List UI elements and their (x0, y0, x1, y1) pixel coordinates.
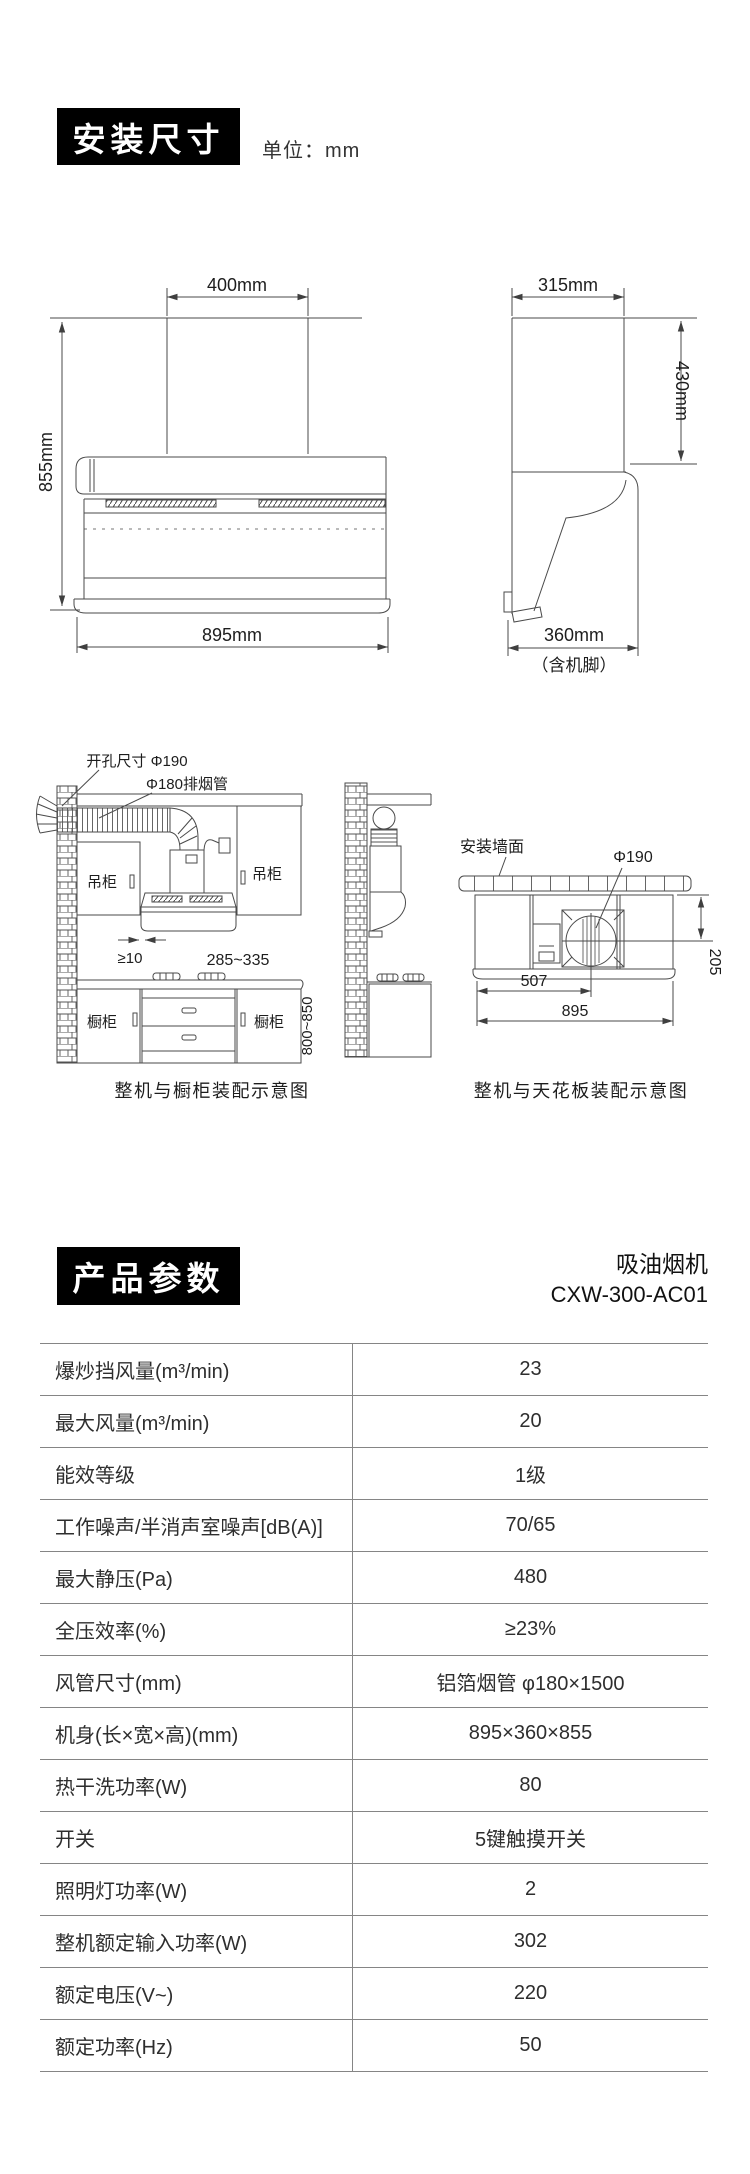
spec-label: 最大风量(m³/min) (40, 1396, 353, 1447)
table-row: 机身(长×宽×高)(mm) 895×360×855 (40, 1708, 708, 1760)
spec-label: 整机额定输入功率(W) (40, 1916, 353, 1967)
spec-value: 50 (353, 2020, 708, 2071)
spec-label: 机身(长×宽×高)(mm) (40, 1708, 353, 1759)
install-section-header: 安装尺寸 (57, 108, 240, 165)
table-row: 能效等级 1级 (40, 1448, 708, 1500)
side-width-top-dim: 315mm (538, 275, 598, 295)
spec-label: 额定电压(V~) (40, 1968, 353, 2019)
table-row: 额定电压(V~) 220 (40, 1968, 708, 2020)
base-cabinet-left-label: 橱柜 (87, 1014, 117, 1031)
ceiling-diagram-caption: 整机与天花板装配示意图 (474, 1081, 689, 1101)
counter-height-dim: 800~850 (299, 997, 316, 1056)
spec-label: 额定功率(Hz) (40, 2020, 353, 2071)
spec-value: 480 (353, 1552, 708, 1603)
table-row: 额定功率(Hz) 50 (40, 2020, 708, 2072)
spec-value: 895×360×855 (353, 1708, 708, 1759)
table-row: 最大风量(m³/min) 20 (40, 1396, 708, 1448)
table-row: 开关 5键触摸开关 (40, 1812, 708, 1864)
spec-label: 热干洗功率(W) (40, 1760, 353, 1811)
side-height-dim: 430mm (672, 361, 692, 421)
spec-table: 爆炒挡风量(m³/min) 23 最大风量(m³/min) 20 能效等级 1级… (40, 1343, 708, 2072)
table-row: 热干洗功率(W) 80 (40, 1760, 708, 1812)
spec-label: 风管尺寸(mm) (40, 1656, 353, 1707)
front-height-dim: 855mm (36, 432, 56, 492)
params-section-title: 产品参数 (73, 1252, 225, 1300)
ceiling-diagram (345, 783, 713, 1057)
spec-label: 全压效率(%) (40, 1604, 353, 1655)
wall-cabinet-left-label: 吊柜 (87, 874, 117, 891)
spec-value: 1级 (353, 1448, 708, 1499)
front-width-top-dim: 400mm (207, 275, 267, 295)
side-depth-note: （含机脚） (532, 656, 617, 675)
table-row: 全压效率(%) ≥23% (40, 1604, 708, 1656)
table-row: 工作噪声/半消声室噪声[dB(A)] 70/65 (40, 1500, 708, 1552)
front-view (50, 288, 390, 653)
side-depth-dim: 360mm (544, 625, 604, 645)
spec-value: 70/65 (353, 1500, 708, 1551)
cabinet-diagram-caption: 整机与橱柜装配示意图 (115, 1081, 310, 1101)
front-width-bottom-dim: 895mm (202, 625, 262, 645)
spec-label: 开关 (40, 1812, 353, 1863)
dimension-drawing: 400mm 855mm 895mm 315mm 430mm 360mm （含机脚… (0, 190, 750, 690)
depth-dim: 205 (706, 949, 723, 976)
side-view (504, 288, 697, 656)
offset-dim: 507 (521, 973, 548, 990)
wall-surface-label: 安装墙面 (460, 838, 524, 856)
outlet-hole-label: Φ190 (613, 849, 653, 866)
hole-size-label: 开孔尺寸 Φ190 (86, 753, 187, 770)
spec-value: 302 (353, 1916, 708, 1967)
unit-label: 单位：mm (262, 134, 360, 163)
table-row: 爆炒挡风量(m³/min) 23 (40, 1344, 708, 1396)
spec-label: 照明灯功率(W) (40, 1864, 353, 1915)
spec-value: 220 (353, 1968, 708, 2019)
table-row: 风管尺寸(mm) 铝箔烟管 φ180×1500 (40, 1656, 708, 1708)
width-dim: 895 (562, 1003, 589, 1020)
spec-label: 最大静压(Pa) (40, 1552, 353, 1603)
spec-value: 20 (353, 1396, 708, 1447)
gap-dim: ≥10 (118, 950, 143, 967)
product-type: 吸油烟机 (551, 1249, 708, 1280)
product-model: CXW-300-AC01 (551, 1280, 708, 1310)
spec-value: 铝箔烟管 φ180×1500 (353, 1656, 708, 1707)
spec-value: 5键触摸开关 (353, 1812, 708, 1863)
product-detail-page: 安装尺寸 单位：mm (0, 0, 750, 2174)
table-row: 最大静压(Pa) 480 (40, 1552, 708, 1604)
spec-label: 工作噪声/半消声室噪声[dB(A)] (40, 1500, 353, 1551)
duct-label: Φ180排烟管 (146, 776, 228, 793)
product-identity: 吸油烟机 CXW-300-AC01 (551, 1249, 708, 1310)
table-row: 照明灯功率(W) 2 (40, 1864, 708, 1916)
table-row: 整机额定输入功率(W) 302 (40, 1916, 708, 1968)
hood-height-dim: 285~335 (207, 952, 270, 969)
spec-value: 23 (353, 1344, 708, 1395)
spec-label: 能效等级 (40, 1448, 353, 1499)
base-cabinet-right-label: 橱柜 (254, 1014, 284, 1031)
spec-value: 2 (353, 1864, 708, 1915)
params-section-header: 产品参数 (57, 1247, 240, 1305)
spec-value: ≥23% (353, 1604, 708, 1655)
wall-cabinet-right-label: 吊柜 (252, 866, 282, 883)
spec-label: 爆炒挡风量(m³/min) (40, 1344, 353, 1395)
install-section-title: 安装尺寸 (73, 113, 225, 161)
spec-value: 80 (353, 1760, 708, 1811)
assembly-diagrams: 开孔尺寸 Φ190 Φ180排烟管 吊柜 吊柜 ≥10 285~335 橱柜 橱… (0, 720, 750, 1120)
